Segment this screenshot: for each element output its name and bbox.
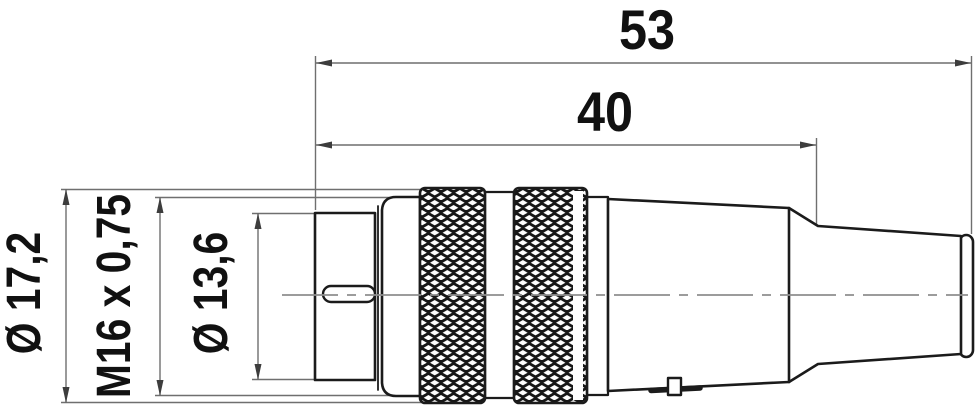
arrow-40-left: [316, 142, 332, 149]
arrow-dia13-bottom: [255, 364, 262, 380]
dimension-label-thread-m16: M16 x 0,75: [89, 194, 141, 398]
clamp-detail-notch: [668, 378, 681, 395]
connector-dimension-drawing: 53 40 Ø 17,2 M16 x 0,75 Ø 13,6: [0, 0, 975, 407]
tail-section: [587, 197, 608, 395]
dimension-label-40: 40: [551, 84, 659, 140]
arrow-53-right: [955, 60, 971, 67]
arrow-dia17-top: [63, 189, 70, 205]
keyway-slot: [323, 286, 375, 302]
dimension-label-53: 53: [593, 2, 701, 58]
arrow-m16-bottom: [157, 380, 164, 396]
dimension-label-dia-17-2: Ø 17,2: [0, 208, 51, 378]
arrow-dia13-top: [255, 213, 262, 229]
arrow-m16-top: [157, 197, 164, 213]
arrow-53-left: [316, 60, 332, 67]
drawing-canvas: [0, 0, 975, 407]
arrow-dia17-bottom: [63, 387, 70, 403]
arrow-40-right: [800, 142, 816, 149]
dimension-label-dia-13-6: Ø 13,6: [186, 208, 238, 378]
thread-flange: [382, 197, 420, 396]
